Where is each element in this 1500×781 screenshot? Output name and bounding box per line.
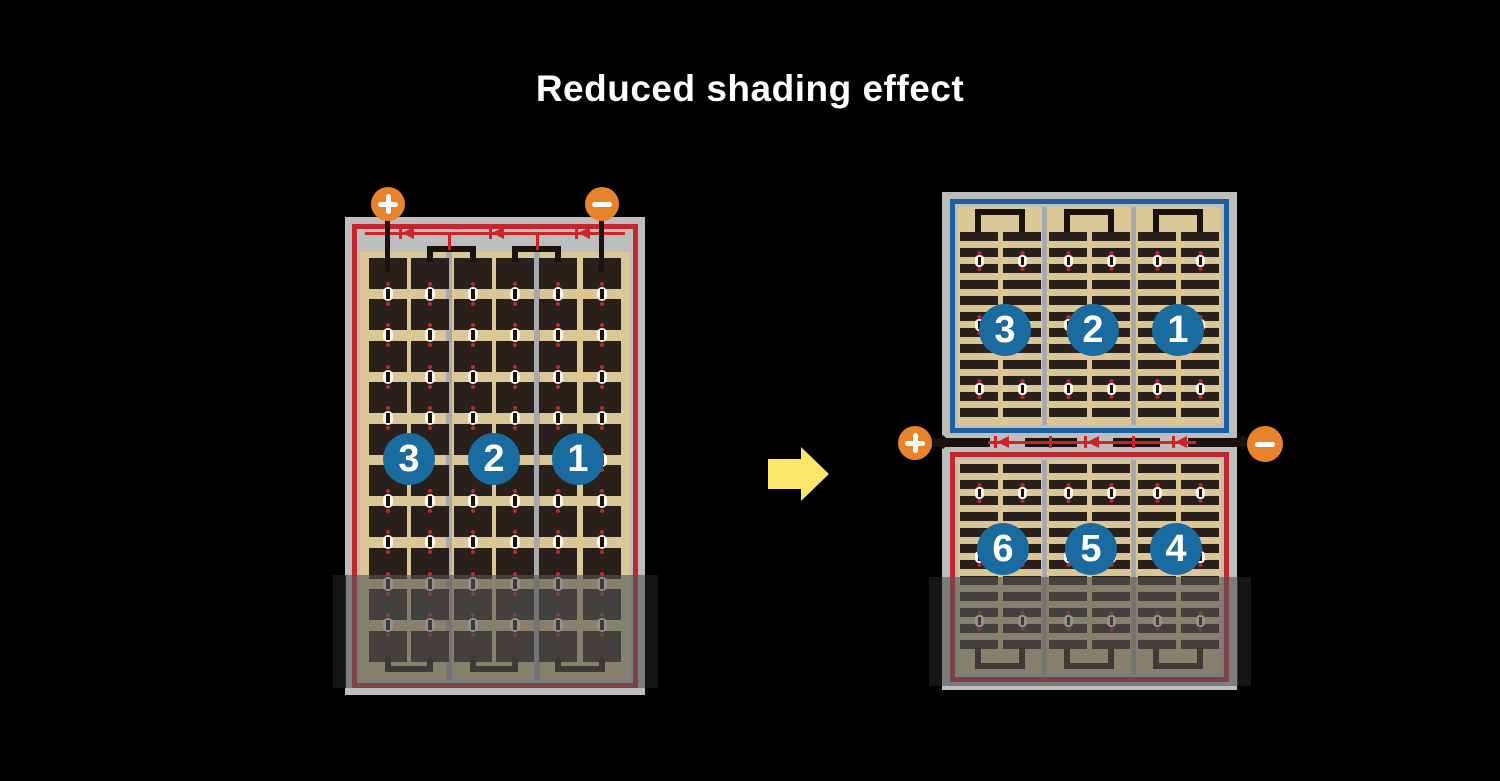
half-cell-bar	[960, 512, 998, 521]
half-cell-bar	[1049, 296, 1087, 305]
half-cell-bar	[1003, 360, 1041, 369]
left-shading-overlay	[333, 575, 658, 688]
cell-connector	[468, 282, 478, 306]
cell-connector	[510, 282, 520, 306]
half-cell-bar	[1138, 360, 1176, 369]
string-badge: 3	[383, 433, 435, 485]
string-separator	[1131, 207, 1136, 425]
cell-connector	[553, 323, 563, 347]
interconnect-ribbon	[427, 246, 476, 262]
half-cell-bar	[1138, 408, 1176, 417]
left-bus-stub	[536, 233, 539, 250]
minus-icon	[592, 202, 612, 207]
left-negative-terminal	[585, 187, 619, 221]
string-badge: 2	[468, 433, 520, 485]
minus-icon	[1255, 442, 1275, 447]
right-negative-terminal	[1247, 426, 1283, 462]
cell-connector	[1153, 379, 1162, 399]
cell-connector	[553, 489, 563, 513]
left-bus-stub	[448, 233, 451, 250]
half-cell-bar	[1181, 296, 1219, 305]
half-cell-bar	[960, 408, 998, 417]
cell-connector	[975, 251, 984, 271]
left-positive-terminal	[371, 187, 405, 221]
half-cell-bar	[1049, 464, 1087, 473]
half-cell-bar	[1138, 280, 1176, 289]
half-cell-bar	[1003, 408, 1041, 417]
cell-connector	[1196, 379, 1205, 399]
cell-connector	[1196, 251, 1205, 271]
right-bus-stub	[1132, 436, 1135, 448]
half-cell-bar	[1049, 280, 1087, 289]
half-cell-bar	[1181, 360, 1219, 369]
cell-connector	[468, 323, 478, 347]
half-cell-bar	[1049, 512, 1087, 521]
bypass-diode-icon	[575, 227, 591, 239]
cell-connector	[553, 530, 563, 554]
cell-connector	[1018, 251, 1027, 271]
cell-connector	[597, 282, 607, 306]
half-cell-bar	[1092, 512, 1130, 521]
interconnect-ribbon	[1153, 209, 1203, 232]
cell-connector	[383, 406, 393, 430]
cell-connector	[383, 282, 393, 306]
half-cell-bar	[960, 232, 998, 241]
cell-connector	[425, 365, 435, 389]
cell-connector	[510, 530, 520, 554]
left-negative-lead	[599, 219, 604, 272]
cell-connector	[1064, 483, 1073, 503]
string-badge: 6	[977, 523, 1029, 575]
cell-connector	[1018, 379, 1027, 399]
cell-connector	[510, 489, 520, 513]
string-separator	[1042, 207, 1047, 425]
string-badge: 1	[552, 433, 604, 485]
half-cell-bar	[1181, 280, 1219, 289]
half-cell-bar	[1003, 280, 1041, 289]
string-badge: 3	[979, 304, 1031, 356]
cell-connector	[553, 406, 563, 430]
right-bus-stub	[1049, 436, 1052, 448]
cell-connector	[510, 323, 520, 347]
bypass-diode-icon	[994, 436, 1010, 448]
half-cell-bar	[1181, 512, 1219, 521]
cell-connector	[975, 379, 984, 399]
cell-connector	[468, 530, 478, 554]
half-cell-bar	[1092, 464, 1130, 473]
cell-connector	[383, 323, 393, 347]
cell-connector	[1107, 251, 1116, 271]
string-badge: 4	[1150, 523, 1202, 575]
bypass-diode-icon	[399, 227, 415, 239]
cell-connector	[975, 483, 984, 503]
string-badge: 1	[1152, 304, 1204, 356]
cell-connector	[383, 530, 393, 554]
diagram-title: Reduced shading effect	[0, 68, 1500, 110]
string-badge: 2	[1067, 304, 1119, 356]
half-cell-bar	[1003, 464, 1041, 473]
half-cell-bar	[1181, 408, 1219, 417]
interconnect-ribbon	[1064, 209, 1114, 232]
half-cell-bar	[1092, 232, 1130, 241]
cell-connector	[468, 406, 478, 430]
half-cell-bar	[1138, 296, 1176, 305]
cell-connector	[425, 530, 435, 554]
right-positive-terminal	[898, 426, 932, 460]
interconnect-ribbon	[975, 209, 1025, 232]
cell-connector	[1107, 483, 1116, 503]
cell-connector	[597, 323, 607, 347]
cell-connector	[1153, 483, 1162, 503]
half-cell-bar	[960, 464, 998, 473]
cell-connector	[1196, 483, 1205, 503]
half-cell-bar	[1092, 408, 1130, 417]
half-cell-bar	[1003, 512, 1041, 521]
cell-connector	[468, 489, 478, 513]
half-cell-bar	[1049, 408, 1087, 417]
cell-connector	[1153, 251, 1162, 271]
cell-connector	[468, 365, 478, 389]
bypass-diode-icon	[1172, 436, 1188, 448]
cell-connector	[383, 365, 393, 389]
half-cell-bar	[1092, 360, 1130, 369]
cell-connector	[597, 530, 607, 554]
cell-connector	[553, 365, 563, 389]
half-cell-bar	[1181, 232, 1219, 241]
half-cell-bar	[1138, 464, 1176, 473]
cell-connector	[1018, 483, 1027, 503]
cell-connector	[425, 323, 435, 347]
string-badge: 5	[1065, 523, 1117, 575]
cell-connector	[597, 406, 607, 430]
cell-connector	[425, 282, 435, 306]
cell-connector	[553, 282, 563, 306]
cell-connector	[425, 489, 435, 513]
cell-connector	[425, 406, 435, 430]
plus-icon	[913, 433, 918, 453]
half-cell-bar	[960, 280, 998, 289]
half-cell-bar	[1181, 464, 1219, 473]
transition-arrow-icon	[765, 445, 835, 505]
right-shading-overlay	[929, 577, 1251, 686]
cell-connector	[383, 489, 393, 513]
bypass-diode-icon	[1084, 436, 1100, 448]
half-cell-bar	[1138, 512, 1176, 521]
plus-icon	[386, 194, 391, 214]
half-cell-bar	[960, 360, 998, 369]
half-cell-bar	[960, 296, 998, 305]
diagram-stage: Reduced shading effect 3 2 1	[0, 0, 1500, 781]
cell-connector	[597, 365, 607, 389]
bypass-diode-icon	[489, 227, 505, 239]
cell-connector	[1064, 251, 1073, 271]
cell-connector	[510, 406, 520, 430]
cell-connector	[597, 489, 607, 513]
half-cell-bar	[1003, 232, 1041, 241]
half-cell-bar	[1049, 232, 1087, 241]
cell-connector	[1107, 379, 1116, 399]
half-cell-bar	[1092, 280, 1130, 289]
cell-connector	[1064, 379, 1073, 399]
half-cell-bar	[1138, 232, 1176, 241]
left-positive-lead	[385, 219, 390, 272]
half-cell-bar	[1049, 360, 1087, 369]
cell-connector	[510, 365, 520, 389]
